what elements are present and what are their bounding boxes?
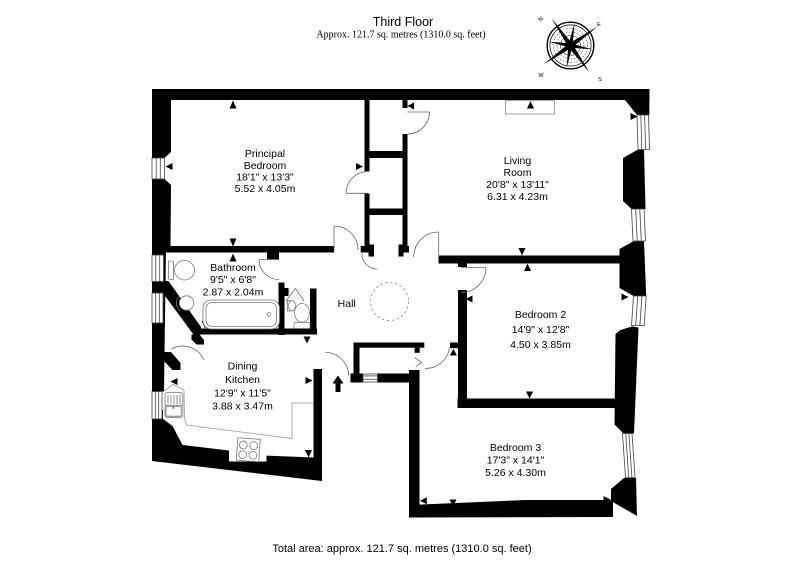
svg-text:Total area: approx. 121.7 sq.: Total area: approx. 121.7 sq. metres (13… bbox=[272, 543, 531, 555]
svg-text:20'8" x 13'11": 20'8" x 13'11" bbox=[486, 179, 549, 191]
svg-text:E: E bbox=[597, 22, 601, 28]
svg-text:Room: Room bbox=[503, 167, 531, 179]
svg-text:4.50 x 3.85m: 4.50 x 3.85m bbox=[510, 339, 571, 351]
svg-text:S: S bbox=[598, 77, 602, 83]
svg-text:17'3" x 14'1": 17'3" x 14'1" bbox=[487, 455, 545, 467]
svg-text:Dining: Dining bbox=[228, 361, 258, 373]
svg-text:5.26 x 4.30m: 5.26 x 4.30m bbox=[485, 467, 546, 479]
svg-text:6.31 x 4.23m: 6.31 x 4.23m bbox=[487, 191, 548, 203]
svg-text:Bedroom 2: Bedroom 2 bbox=[515, 309, 567, 321]
svg-text:Kitchen: Kitchen bbox=[225, 374, 260, 386]
svg-text:3.88 x 3.47m: 3.88 x 3.47m bbox=[212, 401, 273, 413]
svg-text:9'5" x 6'8": 9'5" x 6'8" bbox=[210, 274, 256, 286]
svg-text:Third Floor: Third Floor bbox=[373, 15, 433, 29]
svg-text:14'9" x 12'8": 14'9" x 12'8" bbox=[512, 324, 570, 336]
svg-text:Bathroom: Bathroom bbox=[210, 262, 256, 274]
svg-text:18'1" x 13'3": 18'1" x 13'3" bbox=[236, 172, 294, 184]
svg-text:Approx. 121.7 sq. metres (1310: Approx. 121.7 sq. metres (1310.0 sq. fee… bbox=[316, 30, 485, 41]
svg-text:2.87 x 2.04m: 2.87 x 2.04m bbox=[203, 287, 264, 299]
svg-text:Principal: Principal bbox=[245, 148, 285, 160]
svg-text:Bedroom 3: Bedroom 3 bbox=[490, 442, 542, 454]
svg-text:W: W bbox=[538, 73, 544, 79]
svg-text:Living: Living bbox=[504, 155, 532, 167]
svg-text:Bedroom: Bedroom bbox=[244, 160, 287, 172]
svg-text:12'9" x 11'5": 12'9" x 11'5" bbox=[214, 388, 271, 400]
svg-text:Hall: Hall bbox=[338, 298, 356, 310]
svg-text:5.52 x 4.05m: 5.52 x 4.05m bbox=[235, 183, 296, 195]
